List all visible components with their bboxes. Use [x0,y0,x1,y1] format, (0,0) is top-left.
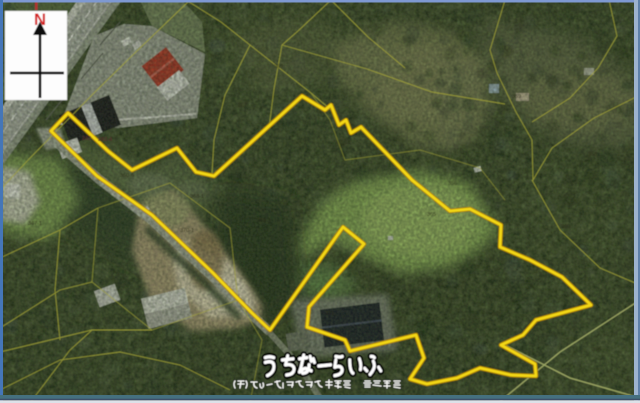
svg-text:242: 242 [82,136,91,142]
svg-text:370-1: 370-1 [180,228,194,234]
svg-text:350-6: 350-6 [120,173,134,179]
svg-text:369: 369 [274,64,283,70]
svg-text:355: 355 [592,347,601,353]
svg-text:358: 358 [588,152,597,158]
svg-text:368-1: 368-1 [190,194,204,200]
svg-text:372: 372 [238,355,247,361]
svg-text:365: 365 [427,212,436,218]
svg-text:356: 356 [448,181,457,187]
svg-text:371: 371 [325,311,334,317]
svg-text:366-1: 366-1 [257,218,271,224]
svg-text:360: 360 [561,224,570,230]
svg-text:361: 361 [492,312,501,318]
svg-text:359: 359 [512,94,521,100]
svg-text:367: 367 [238,103,247,109]
svg-text:242-4: 242-4 [98,137,113,143]
svg-text:347-1: 347-1 [28,221,42,227]
